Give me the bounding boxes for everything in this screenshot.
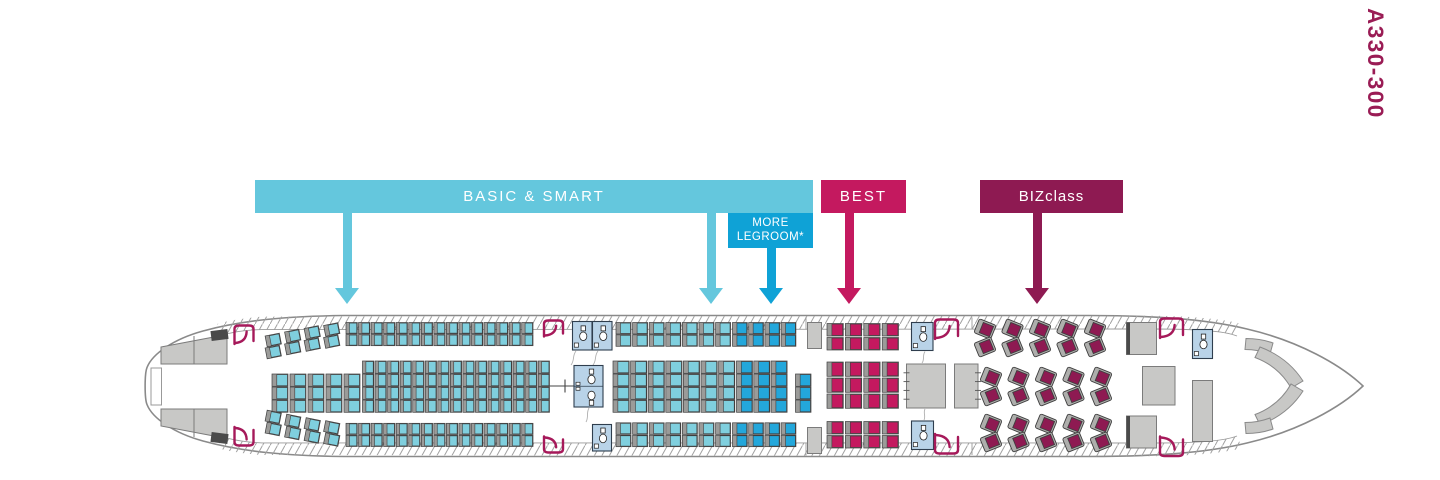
seat: [413, 387, 424, 399]
seat: [363, 400, 374, 412]
seat: [631, 400, 647, 412]
seat: [683, 361, 699, 373]
seat: [488, 361, 499, 373]
seat: [613, 400, 629, 412]
seat: [699, 323, 714, 335]
seat: [749, 423, 764, 435]
seat: [827, 362, 843, 376]
seat: [285, 426, 301, 440]
seat: [400, 400, 411, 412]
seat: [882, 422, 898, 435]
lavatory: [574, 366, 603, 408]
seat: [666, 423, 681, 435]
seat: [384, 423, 395, 434]
seat: [384, 335, 395, 346]
seat: [701, 400, 717, 412]
seat: [845, 394, 861, 408]
seat: [290, 400, 306, 412]
seat: [781, 423, 796, 435]
seat: [513, 361, 524, 373]
seat: [459, 423, 470, 434]
seat: [737, 387, 753, 399]
seat: [683, 374, 699, 386]
seat: [716, 335, 731, 347]
seat: [363, 387, 374, 399]
aircraft-seat-map: [0, 0, 1440, 480]
seat: [616, 323, 631, 335]
seat: [864, 378, 880, 392]
galley-aft-bizclass: [904, 364, 946, 408]
seat: [771, 400, 787, 412]
seat: [463, 387, 474, 399]
seat: [285, 341, 301, 355]
seat: [616, 335, 631, 347]
seat: [882, 362, 898, 376]
seat: [484, 335, 495, 346]
seat: [754, 374, 770, 386]
seat: [375, 387, 386, 399]
seat: [450, 387, 461, 399]
seat: [882, 378, 898, 392]
seat: [272, 400, 288, 412]
seat: [446, 423, 457, 434]
seat: [737, 361, 753, 373]
seat: [265, 345, 281, 359]
seat: [446, 335, 457, 346]
seat: [666, 400, 682, 412]
seat: [400, 361, 411, 373]
seat: [472, 323, 483, 334]
seat: [683, 387, 699, 399]
seat: [509, 323, 520, 334]
seat: [682, 423, 697, 435]
galley-fwd-bizclass-mid: [1143, 367, 1176, 406]
seat: [613, 374, 629, 386]
seat: [501, 361, 512, 373]
seat: [701, 361, 717, 373]
seat: [371, 323, 382, 334]
seat: [648, 361, 664, 373]
seat: [882, 338, 898, 351]
seat: [324, 335, 340, 349]
seat: [272, 387, 288, 399]
seat: [666, 435, 681, 447]
seat: [421, 323, 432, 334]
galley-front-economy-top: [808, 323, 822, 349]
seat: [459, 323, 470, 334]
seat: [666, 335, 681, 347]
galley-front-economy-bottom: [808, 428, 822, 454]
seat: [522, 423, 533, 434]
seat: [409, 423, 420, 434]
seat: [484, 323, 495, 334]
seat: [648, 387, 664, 399]
seat: [326, 374, 342, 386]
seat: [631, 374, 647, 386]
seat: [425, 374, 436, 386]
galley-fwd-bizclass-top: [1127, 323, 1157, 355]
seat: [484, 435, 495, 446]
seat: [409, 335, 420, 346]
seat: [434, 435, 445, 446]
seat: [409, 323, 420, 334]
seat: [633, 423, 648, 435]
seat: [497, 323, 508, 334]
seat: [526, 374, 537, 386]
seat: [346, 323, 357, 334]
seat: [771, 374, 787, 386]
seat: [304, 338, 320, 352]
seat: [459, 435, 470, 446]
seat: [438, 374, 449, 386]
seat: [538, 387, 549, 399]
seat: [649, 323, 664, 335]
seat: [699, 335, 714, 347]
seat: [781, 335, 796, 347]
seat: [497, 435, 508, 446]
seat: [754, 361, 770, 373]
seat: [716, 435, 731, 447]
galley-fwd-bizclass-bottom: [1127, 416, 1157, 448]
seat: [472, 335, 483, 346]
seat: [513, 374, 524, 386]
lavatory: [912, 323, 934, 351]
seat: [845, 324, 861, 337]
seat: [864, 422, 880, 435]
seat: [827, 422, 843, 435]
seat: [304, 430, 320, 444]
seat: [326, 400, 342, 412]
seat: [501, 374, 512, 386]
seat: [522, 335, 533, 346]
lavatory: [593, 425, 612, 452]
seat: [683, 400, 699, 412]
seat: [388, 387, 399, 399]
seat: [265, 422, 281, 436]
seat: [497, 423, 508, 434]
seat: [475, 374, 486, 386]
seat: [409, 435, 420, 446]
seat: [781, 435, 796, 447]
seat: [375, 374, 386, 386]
seat: [864, 338, 880, 351]
lavatory: [1193, 330, 1213, 359]
seat: [538, 400, 549, 412]
seat: [459, 335, 470, 346]
seat: [716, 323, 731, 335]
seat: [497, 335, 508, 346]
seat: [781, 323, 796, 335]
seat: [719, 361, 735, 373]
seat: [633, 335, 648, 347]
seat: [701, 374, 717, 386]
seat: [771, 361, 787, 373]
seat: [701, 387, 717, 399]
seat: [326, 387, 342, 399]
seat: [733, 335, 748, 347]
seat: [719, 387, 735, 399]
seat: [733, 323, 748, 335]
seat: [882, 394, 898, 408]
seat: [308, 400, 324, 412]
seat: [285, 329, 301, 343]
seat: [864, 436, 880, 449]
seat: [845, 422, 861, 435]
seat: [771, 387, 787, 399]
seat: [344, 400, 360, 412]
seat: [526, 400, 537, 412]
seat: [513, 387, 524, 399]
seat: [765, 323, 780, 335]
seat: [438, 387, 449, 399]
seat: [463, 400, 474, 412]
seat: [450, 374, 461, 386]
seat: [749, 335, 764, 347]
seat: [864, 394, 880, 408]
seat: [631, 361, 647, 373]
seat: [285, 414, 301, 428]
seat: [845, 338, 861, 351]
seat: [434, 423, 445, 434]
seat: [616, 423, 631, 435]
seat: [388, 361, 399, 373]
seat: [450, 361, 461, 373]
seat: [384, 435, 395, 446]
seat: [425, 361, 436, 373]
seat: [509, 435, 520, 446]
seat: [375, 361, 386, 373]
seat: [613, 387, 629, 399]
seat: [396, 435, 407, 446]
seat: [475, 400, 486, 412]
seat: [384, 323, 395, 334]
seat: [526, 361, 537, 373]
seat: [413, 400, 424, 412]
seat: [488, 374, 499, 386]
seat: [538, 374, 549, 386]
seat: [308, 387, 324, 399]
seat: [488, 387, 499, 399]
seat: [754, 400, 770, 412]
seat: [765, 423, 780, 435]
seat: [538, 361, 549, 373]
seat: [308, 374, 324, 386]
seat: [346, 335, 357, 346]
seat: [666, 374, 682, 386]
seat: [749, 435, 764, 447]
seat: [733, 423, 748, 435]
seat: [472, 423, 483, 434]
seat: [827, 394, 843, 408]
seat: [796, 400, 812, 412]
seat: [388, 374, 399, 386]
seat: [413, 374, 424, 386]
seat: [472, 435, 483, 446]
seat: [359, 423, 370, 434]
seat: [882, 324, 898, 337]
seat: [344, 387, 360, 399]
seat: [396, 423, 407, 434]
seat: [484, 423, 495, 434]
seat: [371, 435, 382, 446]
seat: [845, 436, 861, 449]
seat: [737, 400, 753, 412]
seat: [666, 387, 682, 399]
seat: [400, 374, 411, 386]
seat: [359, 335, 370, 346]
seat: [765, 335, 780, 347]
seat: [827, 436, 843, 449]
seat: [501, 387, 512, 399]
seat: [649, 335, 664, 347]
seat: [371, 423, 382, 434]
seat: [749, 323, 764, 335]
seat: [324, 421, 340, 435]
seat: [421, 423, 432, 434]
seat: [509, 423, 520, 434]
galley-fwd-door2: [955, 364, 982, 408]
seat: [616, 435, 631, 447]
seat: [265, 333, 281, 347]
seat: [363, 361, 374, 373]
seat: [522, 323, 533, 334]
seat: [737, 374, 753, 386]
seat: [290, 387, 306, 399]
seat: [425, 400, 436, 412]
lavatory: [593, 322, 613, 351]
seat: [344, 374, 360, 386]
seat: [463, 361, 474, 373]
seat: [845, 362, 861, 376]
seat: [290, 374, 306, 386]
seat: [413, 361, 424, 373]
seat: [488, 400, 499, 412]
seat: [648, 374, 664, 386]
seat: [719, 374, 735, 386]
seat: [509, 335, 520, 346]
seat: [438, 400, 449, 412]
seat: [699, 435, 714, 447]
seat: [733, 435, 748, 447]
seat: [754, 387, 770, 399]
seat: [827, 324, 843, 337]
seat: [633, 435, 648, 447]
seat: [346, 435, 357, 446]
seat: [359, 435, 370, 446]
seat: [475, 387, 486, 399]
seat: [526, 387, 537, 399]
seat: [864, 362, 880, 376]
seat: [796, 387, 812, 399]
seat: [463, 374, 474, 386]
seat: [501, 400, 512, 412]
seat: [396, 335, 407, 346]
seat: [613, 361, 629, 373]
seat: [682, 435, 697, 447]
seat: [633, 323, 648, 335]
seat: [682, 335, 697, 347]
seat: [375, 400, 386, 412]
seat: [388, 400, 399, 412]
seat: [304, 418, 320, 432]
seat: [304, 326, 320, 340]
seat: [845, 378, 861, 392]
seat: [716, 423, 731, 435]
seat: [649, 423, 664, 435]
seat: [765, 435, 780, 447]
seatmap-infographic: BASIC & SMART MORE LEGROOM* BEST BIZclas…: [0, 0, 1440, 480]
seat: [631, 387, 647, 399]
seat: [371, 335, 382, 346]
seat: [359, 323, 370, 334]
seat: [324, 323, 340, 337]
seat: [796, 374, 812, 386]
seat: [265, 410, 281, 424]
seat: [346, 423, 357, 434]
seat: [446, 435, 457, 446]
seat: [434, 335, 445, 346]
seat: [649, 435, 664, 447]
seat: [396, 323, 407, 334]
seat: [719, 400, 735, 412]
seat: [682, 323, 697, 335]
galley-nose: [1193, 381, 1213, 442]
seat: [513, 400, 524, 412]
seat: [421, 335, 432, 346]
seat: [425, 387, 436, 399]
seat: [434, 323, 445, 334]
seat: [648, 400, 664, 412]
lavatory: [912, 421, 934, 450]
seat: [438, 361, 449, 373]
lavatory: [573, 322, 593, 351]
seat: [324, 433, 340, 447]
seat: [272, 374, 288, 386]
seat: [475, 361, 486, 373]
seat: [882, 436, 898, 449]
seat: [446, 323, 457, 334]
seat: [421, 435, 432, 446]
seat: [363, 374, 374, 386]
seat: [864, 324, 880, 337]
seat: [666, 323, 681, 335]
seat: [827, 378, 843, 392]
seat: [666, 361, 682, 373]
seat: [450, 400, 461, 412]
seat: [699, 423, 714, 435]
seat: [522, 435, 533, 446]
seat: [827, 338, 843, 351]
seat: [400, 387, 411, 399]
